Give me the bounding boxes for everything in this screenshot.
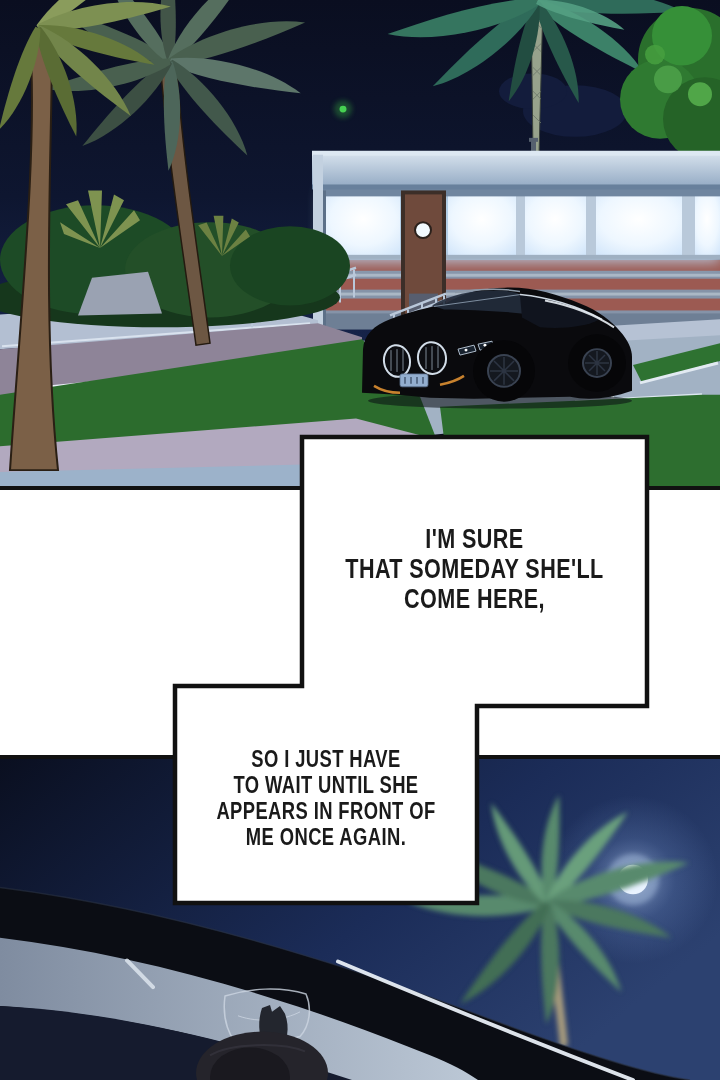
narration-box-2: SO I JUST HAVE TO WAIT UNTIL SHE APPEARS… — [205, 746, 447, 850]
rear-wheel — [568, 334, 626, 392]
top-panel-art — [0, 0, 720, 486]
roof-fascia — [312, 155, 720, 189]
narration-line: I'M SURE — [337, 524, 613, 554]
comic-page: I'M SURE THAT SOMEDAY SHE'LL COME HERE, … — [0, 0, 720, 1080]
green-signal-light — [334, 100, 352, 118]
narration-line: SO I JUST HAVE — [205, 746, 447, 772]
front-wheel — [473, 340, 535, 401]
narration-line: COME HERE, — [337, 584, 613, 614]
narration-line: TO WAIT UNTIL SHE — [205, 772, 447, 798]
narration-line: ME ONCE AGAIN. — [205, 824, 447, 850]
narration-line: APPEARS IN FRONT OF — [205, 798, 447, 824]
door-porthole-window — [415, 222, 431, 238]
narration-line: THAT SOMEDAY SHE'LL — [337, 554, 613, 584]
panel-top-night-diner — [0, 0, 720, 490]
narration-box-1: I'M SURE THAT SOMEDAY SHE'LL COME HERE, — [337, 524, 613, 614]
license-plate — [400, 374, 428, 387]
